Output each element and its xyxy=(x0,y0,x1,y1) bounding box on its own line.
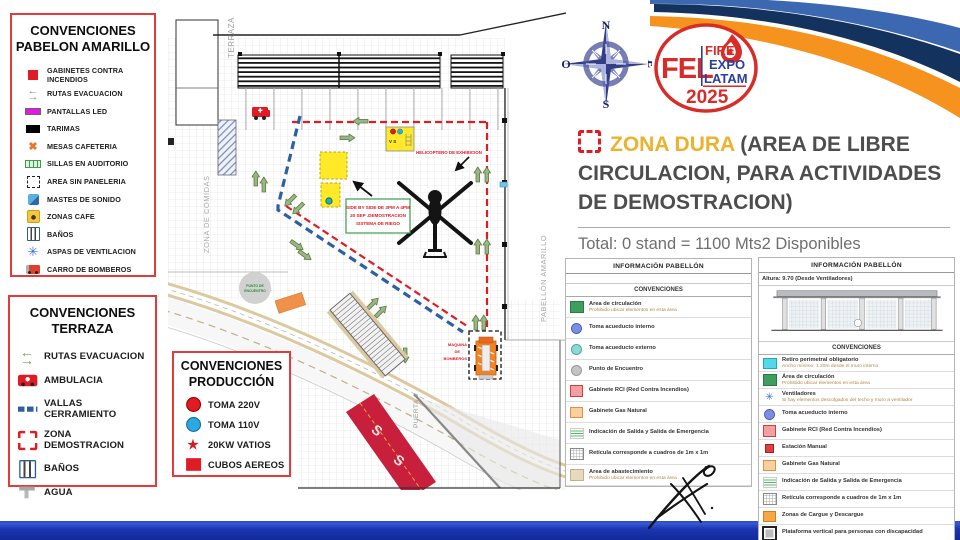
legend-item: VALLAS CERRAMIENTO xyxy=(18,398,153,420)
legend-item: SILLAS EN AUDITORIO xyxy=(24,156,152,171)
pavilion-elevation-drawing xyxy=(759,286,954,342)
info-row: Área de circulaciónProhibido ubicar elem… xyxy=(759,372,954,389)
signature xyxy=(635,456,745,534)
info-row: Toma acueducto interno xyxy=(759,406,954,423)
exit-sign-icon xyxy=(568,427,585,439)
legend-item-label: ASPAS DE VENTILACION xyxy=(47,247,136,256)
info-row-label: Indicación de Salida y Salida de Emergen… xyxy=(782,478,952,485)
info-row: Toma acueducto interno xyxy=(566,318,751,339)
logo-fire: FIRE xyxy=(705,43,735,58)
legend-item-label: AREA SIN PANELERIA xyxy=(47,177,126,186)
legend-item-label: VALLAS CERRAMIENTO xyxy=(44,398,153,420)
info-row-sub: Ancho mínimo: 1.20m desde el muro intern… xyxy=(782,364,952,370)
legend-item-label: BAÑOS xyxy=(44,463,79,474)
divider xyxy=(578,227,950,228)
legend-item-label: TOMA 110V xyxy=(208,420,260,430)
legend-item-label: BAÑOS xyxy=(47,230,73,239)
legend-item-label: MESAS CAFETERIA xyxy=(47,142,117,151)
legend-item: MASTES DE SONIDO xyxy=(24,192,152,207)
legend-item-label: TOMA 220V xyxy=(208,400,260,410)
info-row-label: Gabinete Gas Natural xyxy=(589,408,749,415)
legend-item: 20KW VATIOS xyxy=(184,437,287,452)
info-row: Estación Manual xyxy=(759,440,954,457)
legend-item: GABINETES CONTRA INCENDIOS xyxy=(24,66,152,84)
legend-item-label: GABINETES CONTRA INCENDIOS xyxy=(47,66,152,84)
info-row: Gabinete Gas Natural xyxy=(566,402,751,423)
info-row: Retiro perimetral obligatorioAncho mínim… xyxy=(759,355,954,372)
info-row-label: Gabinete RCI (Red Contra Incendios) xyxy=(589,387,749,394)
legend-produccion: CONVENCIONES PRODUCCIÓN TOMA 220VTOMA 11… xyxy=(172,351,291,477)
toma220-icon xyxy=(183,396,204,413)
info-row: Gabinete Gas Natural xyxy=(759,457,954,474)
info-row: Gabinete RCI (Red Contra Incendios) xyxy=(759,423,954,440)
blue-dot-icon xyxy=(761,408,778,420)
compass-west: O xyxy=(561,57,570,71)
info-row-label: Area de circulación xyxy=(589,301,749,308)
vs-label: V S xyxy=(389,139,396,144)
info-panel-pabellon-2: INFORMACIÓN PABELLÓN Altura: 9.70 (Desde… xyxy=(758,257,955,540)
logo-year: 2025 xyxy=(686,87,729,108)
star20kw-icon xyxy=(183,436,204,453)
info-row: Area de circulaciónProhibido ubicar elem… xyxy=(566,297,751,318)
info-row-label: Ventiladores xyxy=(782,391,952,398)
info-row: Indicación de Salida y Salida de Emergen… xyxy=(566,423,751,444)
mesas-x-icon xyxy=(24,139,42,154)
svg-text:20 SEP .DEMOSTRACION: 20 SEP .DEMOSTRACION xyxy=(350,213,407,218)
legend-item-label: AMBULACIA xyxy=(44,375,103,386)
helicopter-label: HELICOPTERO DE EXHIBICION xyxy=(416,150,482,155)
legend-item-label: 20KW VATIOS xyxy=(208,440,271,450)
aspas-icon xyxy=(24,244,42,259)
orange-square-icon xyxy=(761,510,778,522)
info-row: Gabinete RCI (Red Contra Incendios) xyxy=(566,381,751,402)
info-row-label: Toma acueducto externo xyxy=(589,345,749,352)
info-row-label: Gabinete Gas Natural xyxy=(782,461,952,468)
panel-spacer xyxy=(566,274,751,284)
mastes-icon xyxy=(24,192,42,207)
legend-item-label: PANTALLAS LED xyxy=(47,107,107,116)
info-row-label: Toma acueducto interno xyxy=(589,324,749,331)
peach-square-icon xyxy=(761,459,778,471)
compass-south: S xyxy=(603,97,610,110)
svg-text:BOMBEROS: BOMBEROS xyxy=(443,356,467,361)
svg-text:SIDE BY SIDE DE 3PM A 4PM: SIDE BY SIDE DE 3PM A 4PM xyxy=(346,205,410,210)
info-row: Toma acueducto externo xyxy=(566,339,751,360)
platform-icon xyxy=(761,527,778,539)
legend-terraza: CONVENCIONES TERRAZA RUTAS EVACUACIONAMB… xyxy=(8,295,157,487)
info-row: Punto de Encuentro xyxy=(566,360,751,381)
legend-item: AGUA xyxy=(18,485,153,500)
info-row-label: Toma acueducto interno xyxy=(782,410,952,417)
panel-section-title: CONVENCIONES xyxy=(566,284,751,297)
legend-item-label: RUTAS EVACUACION xyxy=(44,351,144,362)
info-row-sub: Prohibido ubicar elementos en esta área xyxy=(782,381,952,387)
sillas-icon xyxy=(24,156,42,171)
legend-title: CONVENCIONES PRODUCCIÓN xyxy=(174,353,289,390)
info-row-label: Estación Manual xyxy=(782,444,952,451)
info-row-label: Zonas de Cargue y Descargue xyxy=(782,512,952,519)
legend-item: AMBULACIA xyxy=(18,373,153,388)
info-row-label: Área de circulación xyxy=(782,374,952,381)
gray-dot-icon xyxy=(568,364,585,376)
vallas-icon xyxy=(15,399,38,419)
tarima-icon xyxy=(24,121,42,136)
panel-rows: Retiro perimetral obligatorioAncho mínim… xyxy=(759,355,954,540)
legend-pabellon-amarillo: CONVENCIONES PABELON AMARILLO GABINETES … xyxy=(10,13,156,277)
panel-title: INFORMACIÓN PABELLÓN xyxy=(566,259,751,274)
banos-icon xyxy=(24,227,42,242)
firetruck-icon xyxy=(24,262,42,277)
legend-item: TARIMAS xyxy=(24,121,152,136)
svg-text:ENCUENTRO: ENCUENTRO xyxy=(244,289,266,293)
puerta-3-label: PUERTA 3 xyxy=(413,393,420,428)
agua-icon xyxy=(15,483,38,503)
zona-dura-heading-block: ZONA DURA (AREA DE LIBRE CIRCULACION, PA… xyxy=(578,130,956,254)
legend-item: TOMA 110V xyxy=(184,417,287,432)
legend-item: AREA SIN PANELERIA xyxy=(24,174,152,189)
panel-section-title: CONVENCIONES xyxy=(759,342,954,355)
info-panel-pabellon-1: INFORMACIÓN PABELLÓN CONVENCIONES Area d… xyxy=(565,258,752,487)
legend-item: TOMA 220V xyxy=(184,397,287,412)
green-square-icon xyxy=(761,374,778,386)
legend-item: PANTALLAS LED xyxy=(24,104,152,119)
info-row: VentiladoresSi hay elementos descolgados… xyxy=(759,389,954,406)
svg-text:SISTEMA DE RIEGO: SISTEMA DE RIEGO xyxy=(356,221,400,226)
event-floorplan-slide: CONVENCIONES PABELON AMARILLO GABINETES … xyxy=(0,0,960,540)
pink-square-icon xyxy=(568,385,585,397)
legend-item-label: ZONA DEMOSTRACION xyxy=(44,429,153,451)
height-note: Altura: 9.70 (Desde Ventiladores) xyxy=(759,273,954,286)
cyan-square-icon xyxy=(761,357,778,369)
cafe-icon xyxy=(24,209,42,224)
legend-item: CUBOS AEREOS xyxy=(184,457,287,472)
zona-demostracion-icon xyxy=(578,130,601,153)
svg-text:PUNTO DE: PUNTO DE xyxy=(246,284,264,288)
legend-item: RUTAS EVACUACION xyxy=(18,349,153,364)
info-row: Plataforma vertical para personas con di… xyxy=(759,525,954,540)
legend-item-label: AGUA xyxy=(44,487,73,498)
legend-item: ZONA DEMOSTRACION xyxy=(18,429,153,451)
green-square-icon xyxy=(568,301,585,313)
legend-item-label: RUTAS EVACUACION xyxy=(47,89,123,98)
area-dashed-icon xyxy=(24,174,42,189)
svg-text:DE: DE xyxy=(454,349,460,354)
banos-icon xyxy=(15,458,38,478)
tan-square-icon xyxy=(568,469,585,481)
pabellon-amarillo-label: PABELLÓN AMARILLO xyxy=(539,235,548,322)
legend-item: RUTAS EVACUACION xyxy=(24,86,152,101)
blue-dot-icon xyxy=(568,322,585,334)
ambulance-icon xyxy=(15,371,38,391)
svg-text:MAQUINA: MAQUINA xyxy=(448,342,467,347)
info-row-label: Gabinete RCI (Red Contra Incendios) xyxy=(782,427,952,434)
info-row: Retícula corresponde a cuadros de 1m x 1… xyxy=(759,491,954,508)
grid-icon xyxy=(568,448,585,460)
logo-expo: EXPO xyxy=(709,57,745,72)
pink-square-icon xyxy=(761,425,778,437)
teal-dot-icon xyxy=(568,343,585,355)
total-stands-text: Total: 0 stand = 1100 Mts2 Disponibles xyxy=(578,235,956,254)
info-row-label: Indicación de Salida y Salida de Emergen… xyxy=(589,429,749,436)
legend-item-label: ZONAS CAFE xyxy=(47,212,95,221)
evac-arrows-icon xyxy=(24,86,42,101)
legend-title: CONVENCIONES TERRAZA xyxy=(10,297,155,338)
legend-item-label: MASTES DE SONIDO xyxy=(47,195,121,204)
legend-item-label: TARIMAS xyxy=(47,124,80,133)
evac-arrows-icon xyxy=(15,346,38,366)
info-row: Indicación de Salida y Salida de Emergen… xyxy=(759,474,954,491)
legend-item: CARRO DE BOMBEROS xyxy=(24,262,152,277)
info-row-label: Plataforma vertical para personas con di… xyxy=(782,529,952,536)
page-title: ZONA DURA (AREA DE LIBRE CIRCULACION, PA… xyxy=(578,130,956,218)
cubos-icon xyxy=(183,456,204,473)
logo-latam: LATAM xyxy=(704,71,748,86)
info-row-label: Retícula corresponde a cuadros de 1m x 1… xyxy=(782,495,952,502)
fan-icon xyxy=(761,391,778,403)
legend-item-label: SILLAS EN AUDITORIO xyxy=(47,159,128,168)
terraza-label: TERRAZA xyxy=(227,17,236,58)
panel-title: INFORMACIÓN PABELLÓN xyxy=(759,258,954,273)
peach-square-icon xyxy=(568,406,585,418)
legend-item-label: CUBOS AEREOS xyxy=(208,460,284,470)
info-row-label: Punto de Encuentro xyxy=(589,366,749,373)
legend-item: ZONAS CAFE xyxy=(24,209,152,224)
exit-sign-icon xyxy=(761,476,778,488)
info-row-sub: Prohibido ubicar elementos en esta área xyxy=(589,308,749,314)
red-mini-icon xyxy=(761,442,778,454)
legend-title: CONVENCIONES PABELON AMARILLO xyxy=(12,15,154,56)
info-row: Zonas de Cargue y Descargue xyxy=(759,508,954,525)
led-screen-icon xyxy=(24,104,42,119)
meeting-point: PUNTO DE ENCUENTRO xyxy=(239,272,271,304)
legend-item: BAÑOS xyxy=(18,461,153,476)
legend-item-label: CARRO DE BOMBEROS xyxy=(47,265,131,274)
legend-item: MESAS CAFETERIA xyxy=(24,139,152,154)
info-row-sub: Si hay elementos descolgados del techo y… xyxy=(782,398,952,404)
zona-demo-icon xyxy=(15,430,38,450)
grid-icon xyxy=(761,493,778,505)
zona-comidas-label: ZONA DE COMIDAS xyxy=(202,175,211,253)
compass-north: N xyxy=(602,18,611,32)
legend-item: BAÑOS xyxy=(24,227,152,242)
compass-east: E xyxy=(645,60,652,68)
legend-item: ASPAS DE VENTILACION xyxy=(24,244,152,259)
compass-rose: N S O E xyxy=(560,18,652,110)
fel-expo-logo: FEL FIRE EXPO LATAM 2025 xyxy=(652,22,760,114)
toma110-icon xyxy=(183,416,204,433)
info-row-label: Retiro perimetral obligatorio xyxy=(782,357,952,364)
gabinete-icon xyxy=(24,67,42,82)
